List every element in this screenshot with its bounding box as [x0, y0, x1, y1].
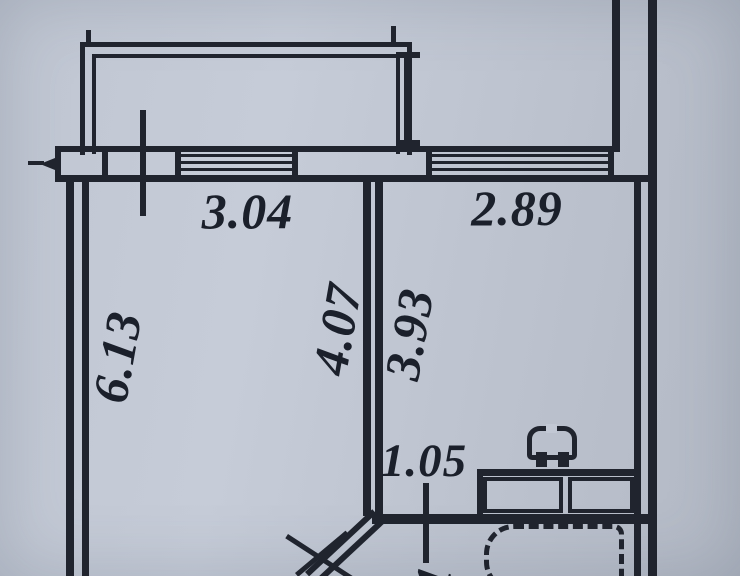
dimension-label-left-depth: 6.13 [82, 294, 152, 421]
wall-right-upper-inner-line [612, 0, 620, 150]
window-left-glazing-1 [181, 154, 292, 157]
wall-band-divider-4 [426, 146, 432, 182]
window-right-glazing-1 [432, 154, 608, 157]
wall-band-divider-5 [608, 146, 614, 182]
balcony-inner-rail [92, 54, 400, 154]
wall-band-divider-1 [102, 146, 108, 182]
window-left-glazing-2 [181, 161, 292, 164]
sink-icon-foot-right [558, 452, 569, 467]
wall-diagonal-line-1 [305, 509, 376, 576]
kitchen-counter-right [568, 477, 634, 513]
window-right-glazing-3 [432, 168, 608, 171]
dimension-label-bottom-partial: 1 [404, 546, 463, 576]
dimension-label-top-right: 2.89 [458, 183, 576, 233]
bathtub-fixture [484, 524, 624, 576]
window-right-glazing-2 [432, 161, 608, 164]
balcony-pillar-cap-top [396, 52, 420, 58]
dimension-label-top-left: 3.04 [190, 186, 305, 236]
wall-right-outer-line [648, 0, 657, 576]
kitchen-counter-left [483, 477, 563, 513]
balcony-corner-tick-right [391, 26, 396, 44]
dimension-label-partition-left: 4.07 [302, 266, 372, 393]
dimension-label-inner-width: 1.05 [374, 438, 474, 485]
wall-band-divider-3 [292, 146, 298, 182]
sink-icon-notch [546, 424, 557, 433]
sink-icon-foot-left [536, 452, 547, 467]
wall-partition-left-line [363, 178, 371, 516]
dimension-tick-left [140, 110, 146, 216]
section-arrow-tail [28, 161, 44, 165]
wall-bathroom-top [372, 514, 648, 524]
balcony-corner-tick-left [86, 30, 91, 44]
floor-plan: 3.04 2.89 6.13 4.07 3.93 1.05 1 [0, 0, 740, 576]
wall-band-divider-2 [175, 146, 181, 182]
wall-left-outer-line [66, 178, 74, 576]
balcony-pillar-line [404, 56, 408, 142]
dimension-label-partition-right: 3.93 [374, 271, 444, 398]
window-left-glazing-3 [181, 168, 292, 171]
kitchen-shelf-line [477, 469, 641, 476]
